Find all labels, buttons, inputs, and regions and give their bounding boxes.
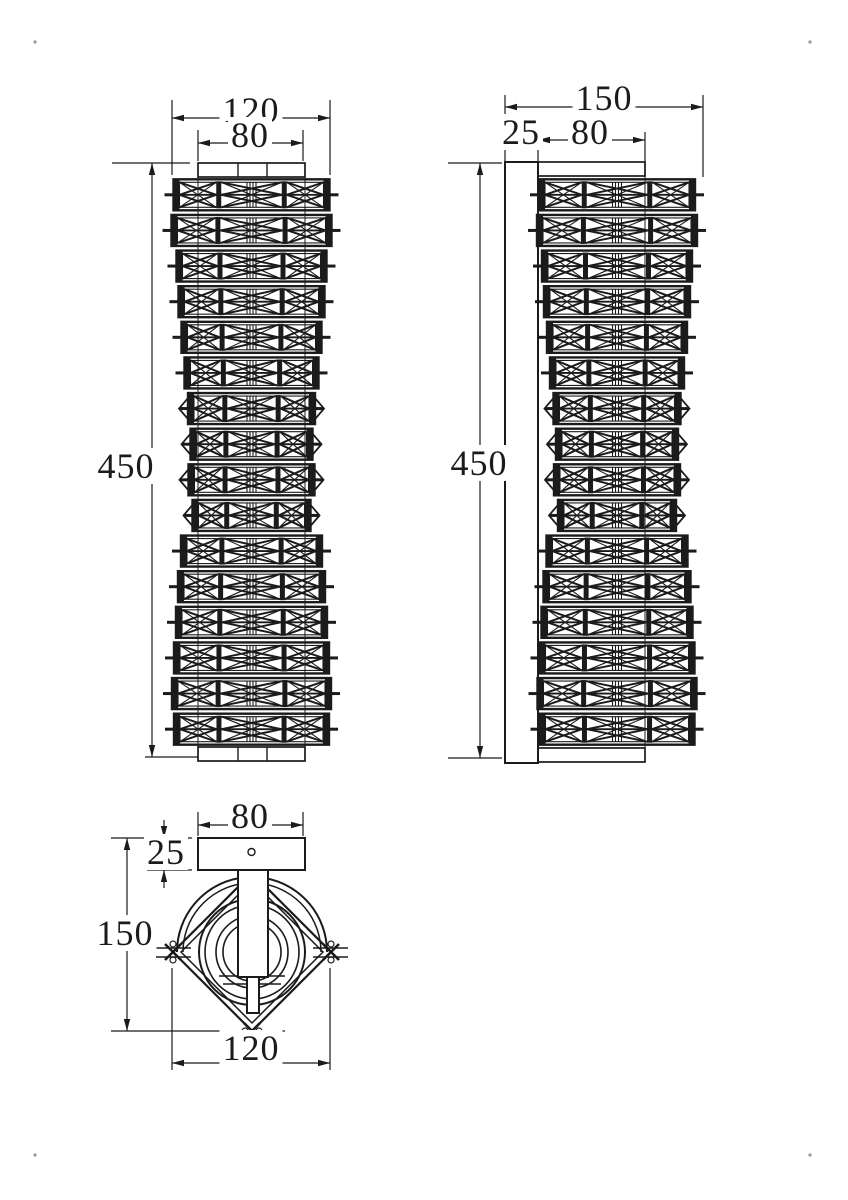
top-total-depth-label: 150	[94, 915, 157, 951]
side-bracket-depth-label: 80	[568, 114, 612, 150]
side-wall-plate-label: 25	[499, 114, 543, 150]
side-total-depth-label: 150	[573, 80, 636, 116]
front-view	[112, 100, 341, 761]
top-outer-width-label: 120	[220, 1030, 283, 1066]
side-height-label: 450	[448, 445, 511, 481]
side-view	[448, 95, 706, 763]
top-plate-width-label: 80	[228, 798, 272, 834]
front-inner-width-label: 80	[228, 117, 272, 153]
top-plate-depth-label: 25	[144, 834, 188, 870]
drawing-canvas	[0, 0, 848, 1200]
drawing-sheet: 120 80 450 150 25 80 450 80 25 150 120	[0, 0, 848, 1200]
front-height-label: 450	[95, 448, 158, 484]
